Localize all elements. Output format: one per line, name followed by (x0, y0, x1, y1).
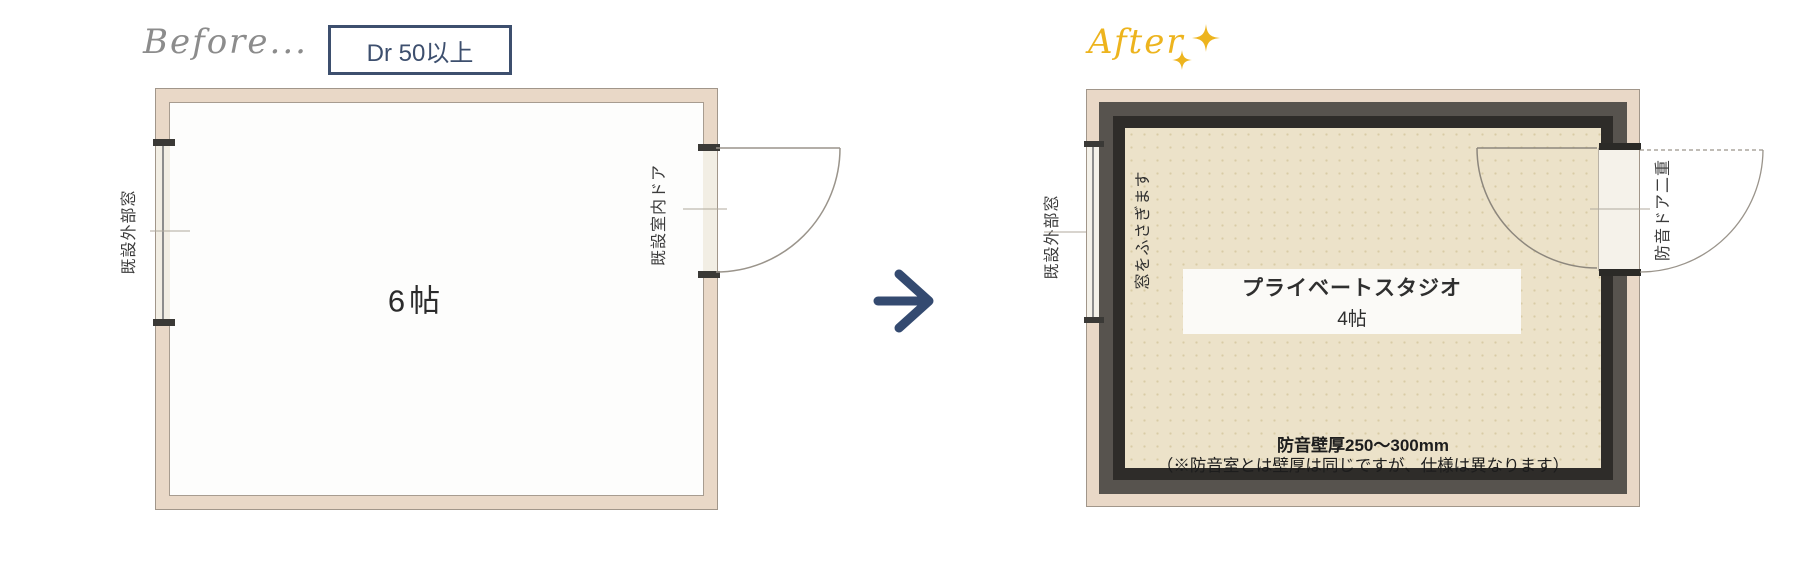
sparkle-icon (1168, 22, 1228, 82)
after-floor-plan: プライベートスタジオ 4帖 防音壁厚250〜300mm （※防音室とは壁厚は同じ… (1086, 89, 1640, 507)
before-door-opening (703, 148, 717, 273)
before-window-glass-line (162, 144, 164, 321)
before-door-jamb-bottom (698, 271, 720, 278)
before-room-size-label: 6帖 (388, 276, 444, 321)
after-window-jamb-bottom (1084, 317, 1104, 323)
before-door-swing (716, 148, 840, 272)
after-window-glass-line (1092, 146, 1094, 319)
after-room-size-label: 4帖 (1337, 304, 1367, 331)
after-window-jamb-top (1084, 141, 1104, 147)
right-arrow-icon (878, 274, 929, 328)
after-door-label: 防音ドア二重 (1649, 159, 1673, 261)
before-window-jamb-top (153, 139, 175, 146)
studio-name-box: プライベートスタジオ 4帖 (1183, 269, 1521, 334)
before-title: Before... (143, 22, 308, 62)
before-window-jamb-bottom (153, 319, 175, 326)
after-door-opening (1598, 148, 1639, 271)
soundproof-rating-text: Dr 50以上 (367, 33, 474, 68)
wall-thickness-detail: （※防音室とは壁厚は同じですが、仕様は異なります） (1107, 452, 1619, 476)
studio-name: プライベートスタジオ (1242, 272, 1462, 302)
soundproof-rating-badge: Dr 50以上 (328, 25, 512, 75)
before-door-label: 既設室内ドア (645, 164, 669, 266)
before-door-jamb-top (698, 144, 720, 151)
after-window-label: 既設外部窓 (1038, 194, 1062, 279)
before-window-label: 既設外部窓 (115, 189, 139, 274)
after-door-jamb-bottom (1599, 269, 1641, 276)
after-door-jamb-top (1599, 143, 1641, 150)
after-window-note: 窓をふさぎます (1129, 170, 1153, 289)
